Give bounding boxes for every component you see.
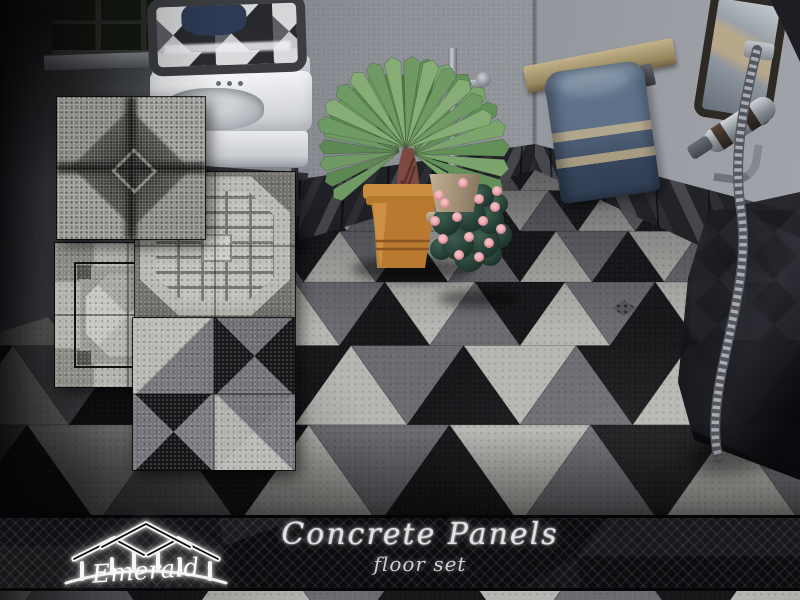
swatch-triangle-checker-tile <box>133 318 295 470</box>
set-title: Concrete Panels <box>240 518 600 552</box>
banner-text: Concrete Panels floor set <box>240 518 600 576</box>
swatch-granite-diamond-tile <box>57 97 205 239</box>
cc-preview-scene: Emerald Concrete Panels floor set <box>0 0 800 600</box>
emerald-logo: Emerald <box>56 517 236 589</box>
brand-name: Emerald <box>90 552 200 589</box>
set-subtitle: floor set <box>240 552 600 576</box>
